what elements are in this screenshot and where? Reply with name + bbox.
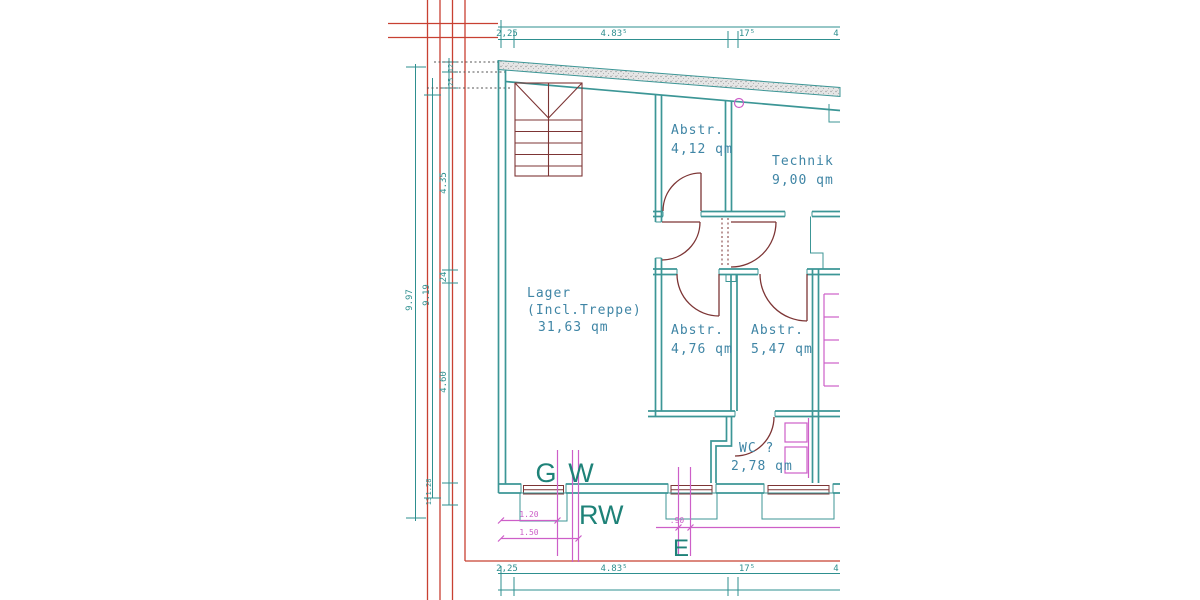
room-label-abstr2: Abstr. bbox=[671, 323, 724, 338]
dim-left-lower-1: 13 bbox=[425, 497, 433, 505]
room-area-wc: 2,78 qm bbox=[731, 459, 793, 474]
room-area-technik: 9,00 qm bbox=[772, 173, 834, 188]
dim-bottom-1: 4.83⁵ bbox=[600, 564, 627, 574]
room-area-abstr3: 5,47 qm bbox=[751, 342, 813, 357]
utility-label-rainwater: RW bbox=[579, 500, 624, 530]
dimension-chain-bottom: 2,25 4.83⁵ 17⁵ 4 bbox=[496, 564, 840, 596]
dim-top-1: 4.83⁵ bbox=[600, 29, 627, 39]
wc-cistern-fixture bbox=[785, 423, 807, 442]
room-label-technik: Technik bbox=[772, 154, 834, 169]
hatched-top-wall bbox=[498, 61, 840, 97]
door-arc-abstr-412 bbox=[663, 173, 701, 211]
dim-bottom-3: 4 bbox=[833, 564, 838, 574]
floor-plan-drawing: 2,25 4.83⁵ 17⁵ 4 2,25 4.83⁵ 17⁵ 4 9.97 9… bbox=[0, 0, 1200, 600]
room-label-abstr1: Abstr. bbox=[671, 123, 724, 138]
dim-top-3: 4 bbox=[833, 29, 838, 39]
dim-left-lower-0: 1.28 bbox=[425, 479, 433, 496]
dimension-chain-left: 9.97 9.19 4.35 24 4.60 12 25 1.28 13 bbox=[405, 58, 458, 521]
dim-left-small-0: 12 bbox=[447, 64, 455, 72]
door-arc-abstr-476 bbox=[677, 274, 719, 316]
room-label-abstr3: Abstr. bbox=[751, 323, 804, 338]
dim-left-seg-1: 24 bbox=[439, 272, 449, 283]
dimension-chain-top: 2,25 4.83⁵ 17⁵ 4 bbox=[496, 20, 840, 48]
dim-bottom-2: 17⁵ bbox=[739, 564, 755, 574]
dim-left-small-1: 25 bbox=[447, 78, 455, 86]
utility-label-electric: E bbox=[673, 535, 689, 562]
room-area-lager: 31,63 qm bbox=[538, 320, 609, 335]
room-area-abstr2: 4,76 qm bbox=[671, 342, 733, 357]
room-label-lager: Lager bbox=[527, 286, 571, 301]
dim-top-2: 17⁵ bbox=[739, 29, 755, 39]
room-label-lager-detail: (Incl.Treppe) bbox=[527, 303, 642, 318]
dim-left-seg-0: 4.35 bbox=[439, 172, 449, 194]
floor-plan-canvas: 2,25 4.83⁵ 17⁵ 4 2,25 4.83⁵ 17⁵ 4 9.97 9… bbox=[0, 0, 1200, 600]
room-area-abstr1: 4,12 qm bbox=[671, 142, 733, 157]
utility-label-water: W bbox=[568, 458, 594, 488]
dim-magenta-150: 1.50 bbox=[519, 528, 538, 537]
staircase bbox=[515, 83, 582, 176]
utility-label-gas: G bbox=[535, 458, 556, 488]
dim-magenta-90: .90 bbox=[670, 516, 685, 525]
door-arc-corridor-right bbox=[731, 222, 776, 267]
dim-left-overall: 9.97 bbox=[405, 289, 415, 311]
exterior-walls bbox=[498, 61, 840, 494]
door-arc-abstr-547 bbox=[760, 274, 807, 321]
dim-magenta-120: 1.20 bbox=[519, 510, 538, 519]
door-arc-lager-corridor bbox=[662, 222, 700, 260]
dim-bottom-0: 2,25 bbox=[496, 564, 518, 574]
dim-left-inner: 9.19 bbox=[422, 284, 432, 306]
dim-left-seg-2: 4.60 bbox=[439, 371, 449, 393]
service-point-marker bbox=[735, 99, 744, 108]
window-sill-3 bbox=[762, 493, 834, 519]
dim-top-0: 2,25 bbox=[496, 29, 518, 39]
room-label-wc: WC ? bbox=[739, 441, 774, 456]
